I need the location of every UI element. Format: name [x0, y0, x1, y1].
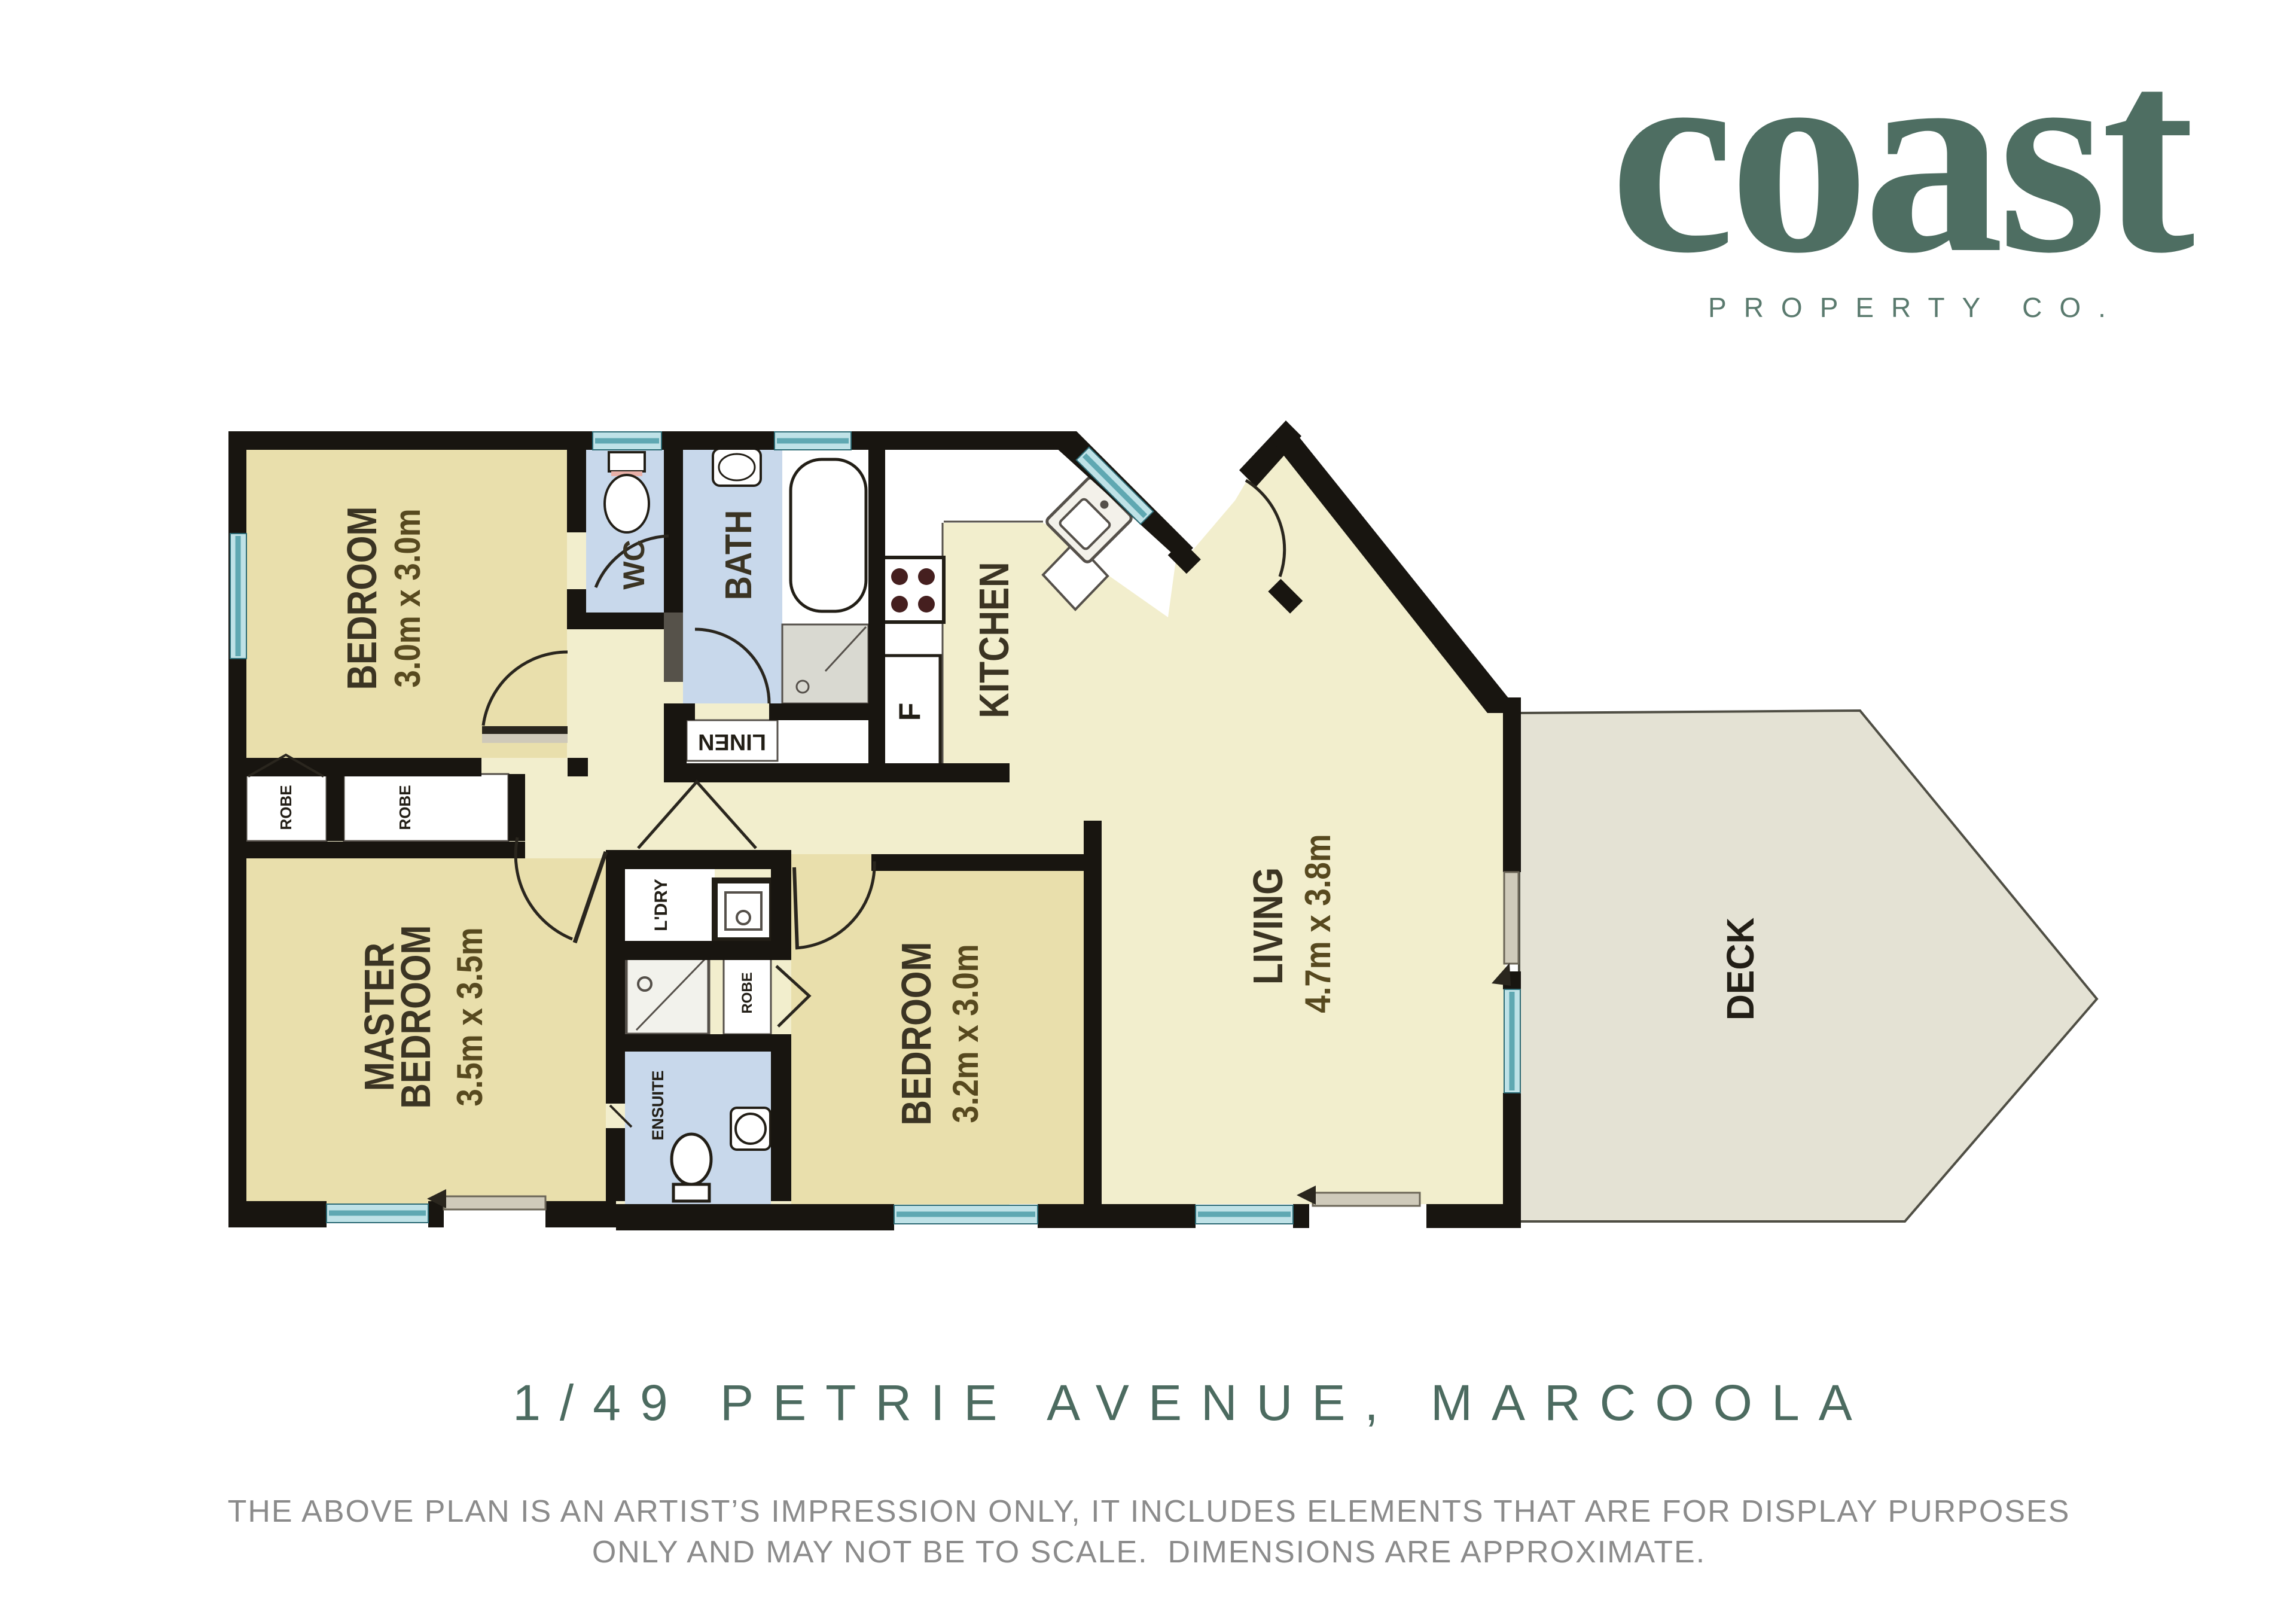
svg-text:DECK: DECK [1719, 918, 1763, 1020]
svg-text:3.2m x 3.0m: 3.2m x 3.0m [946, 944, 986, 1123]
svg-text:ROBE: ROBE [396, 785, 414, 830]
svg-text:ROBE: ROBE [277, 785, 295, 830]
svg-text:3.5m x 3.5m: 3.5m x 3.5m [450, 927, 490, 1106]
svg-text:1/49 PETRIE AVENUE, MARCOOLA: 1/49 PETRIE AVENUE, MARCOOLA [513, 1375, 1871, 1431]
svg-text:4.7m x 3.8m: 4.7m x 3.8m [1298, 834, 1338, 1013]
svg-text:BEDROOM: BEDROOM [392, 925, 439, 1109]
svg-text:BEDROOM: BEDROOM [892, 942, 940, 1126]
svg-text:PROPERTY CO.: PROPERTY CO. [1708, 292, 2123, 323]
svg-text:THE ABOVE PLAN IS AN ARTIST’S: THE ABOVE PLAN IS AN ARTIST’S IMPRESSION… [228, 1494, 2071, 1529]
svg-text:ROBE: ROBE [739, 972, 755, 1013]
svg-text:WC: WC [617, 540, 651, 589]
svg-text:BATH: BATH [718, 510, 759, 601]
svg-text:3.0m x 3.0m: 3.0m x 3.0m [388, 508, 428, 687]
svg-text:LIVING: LIVING [1244, 867, 1291, 985]
svg-text:F: F [893, 703, 926, 721]
svg-text:L'DRY: L'DRY [651, 879, 671, 931]
svg-text:LINEN: LINEN [698, 729, 766, 754]
svg-text:BEDROOM: BEDROOM [338, 507, 385, 690]
svg-text:coast: coast [1610, 0, 2198, 311]
svg-text:ENSUITE: ENSUITE [649, 1070, 667, 1140]
svg-text:KITCHEN: KITCHEN [970, 562, 1017, 718]
svg-text:ONLY AND MAY NOT BE TO SCALE.: ONLY AND MAY NOT BE TO SCALE. DIMENSIONS… [592, 1535, 1706, 1570]
